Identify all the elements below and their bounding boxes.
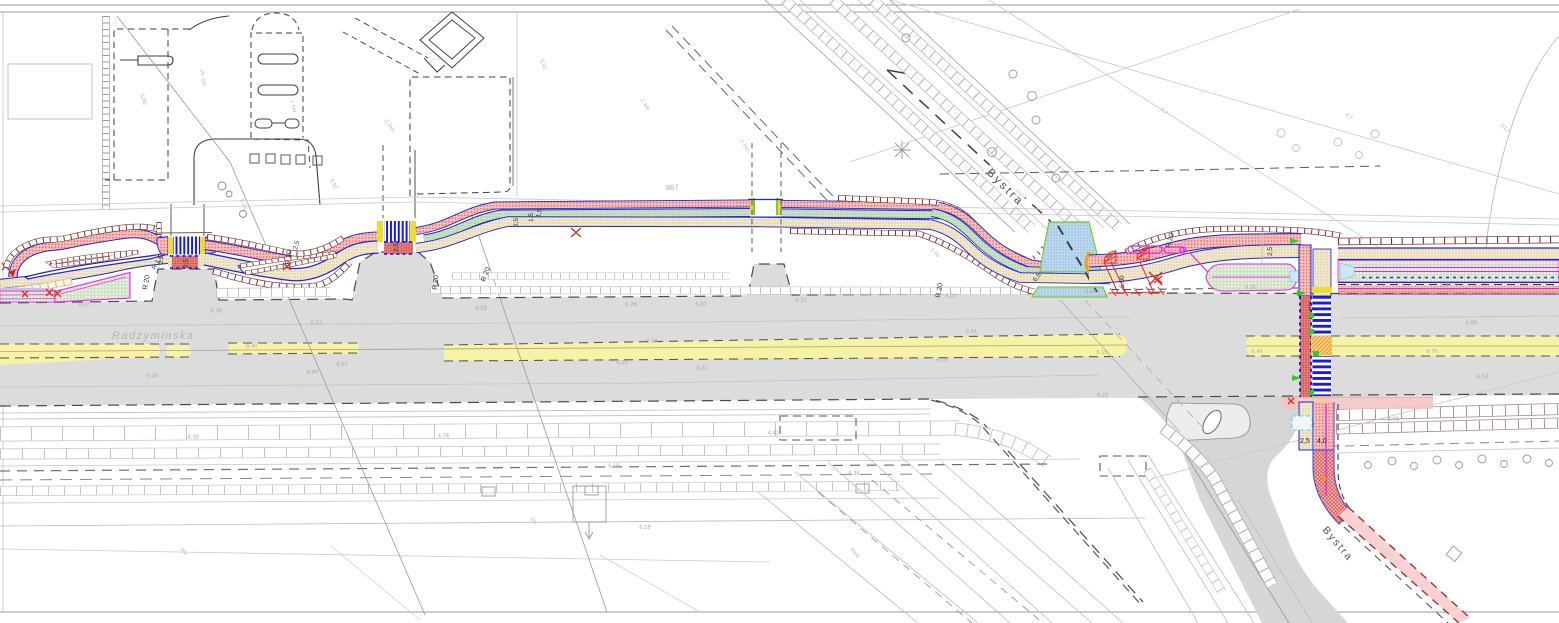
svg-text:6.23: 6.23 (1097, 393, 1108, 399)
svg-text:6.34: 6.34 (646, 339, 658, 345)
svg-text:2,5: 2,5 (183, 259, 190, 268)
svg-text:887: 887 (666, 183, 679, 192)
svg-text:2.78: 2.78 (1387, 417, 1398, 423)
svg-text:2,5: 2,5 (393, 243, 400, 252)
svg-text:6.53: 6.53 (1477, 374, 1488, 380)
svg-text:4.39: 4.39 (188, 435, 199, 441)
svg-text:6.29: 6.29 (616, 360, 627, 366)
svg-text:1,5: 1,5 (528, 213, 535, 222)
svg-text:6.22: 6.22 (795, 298, 806, 304)
svg-text:6.28: 6.28 (625, 302, 636, 308)
svg-text:2,5: 2,5 (1307, 301, 1314, 311)
svg-text:6.38: 6.38 (848, 471, 859, 477)
svg-text:2,5: 2,5 (1267, 247, 1274, 256)
svg-text:4,0: 4,0 (1317, 438, 1327, 445)
svg-text:R 20: R 20 (432, 275, 440, 290)
svg-text:2,5: 2,5 (513, 218, 520, 227)
svg-text:6.18: 6.18 (639, 525, 650, 531)
svg-text:6.15: 6.15 (1096, 350, 1107, 356)
svg-text:6,00: 6,00 (1119, 275, 1126, 288)
svg-text:R 20: R 20 (285, 250, 293, 265)
svg-text:4.78: 4.78 (438, 433, 449, 439)
svg-text:6.57: 6.57 (336, 362, 347, 368)
svg-text:6.41: 6.41 (966, 329, 977, 335)
svg-text:4.41: 4.41 (768, 430, 779, 436)
svg-text:5.49: 5.49 (147, 373, 158, 379)
svg-text:6.44: 6.44 (1251, 349, 1263, 355)
svg-text:6.30: 6.30 (1245, 285, 1256, 291)
svg-text:6.30: 6.30 (695, 302, 706, 308)
svg-text:2,5: 2,5 (1300, 438, 1310, 445)
svg-text:6.46: 6.46 (306, 370, 317, 376)
svg-text:6.86: 6.86 (1466, 320, 1477, 326)
svg-text:6.75: 6.75 (1426, 349, 1437, 355)
svg-text:6.22: 6.22 (311, 320, 322, 326)
svg-text:6.24: 6.24 (945, 293, 957, 299)
svg-text:6.28: 6.28 (1085, 289, 1096, 295)
svg-text:Radzyminska: Radzyminska (112, 330, 195, 342)
svg-text:6.16: 6.16 (608, 463, 619, 469)
svg-text:6.46: 6.46 (246, 344, 257, 350)
svg-text:6.18: 6.18 (936, 358, 947, 364)
svg-text:6.07: 6.07 (78, 302, 89, 308)
svg-text:6.22: 6.22 (696, 366, 707, 372)
svg-text:6.29: 6.29 (475, 306, 486, 312)
svg-text:6.34: 6.34 (1440, 283, 1452, 289)
svg-text:6.18: 6.18 (210, 308, 221, 314)
